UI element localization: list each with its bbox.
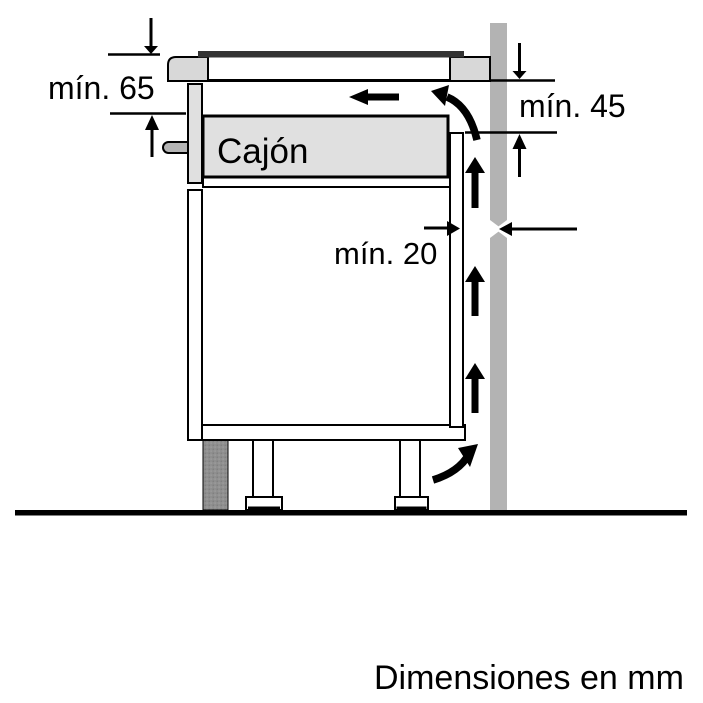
dim-label-hob-depth: mín. 65 [48, 70, 155, 106]
arrow-stem [472, 282, 479, 316]
hob-glass-surface [198, 51, 464, 58]
leg-shaft [400, 440, 420, 497]
airflow-arrow-front [349, 89, 399, 105]
hob-installation-diagram: Cajón [0, 0, 703, 703]
dim-label-rear-gap: mín. 20 [334, 236, 437, 271]
dim-arrow-stem [518, 43, 521, 72]
drawer-front-panel [188, 84, 202, 183]
hob-cavity-bottom-line [206, 79, 452, 82]
dim-arrow-up-icon [513, 134, 527, 149]
dim-arrow-stem [424, 227, 447, 230]
leg-foot-sole [397, 507, 427, 511]
dim-arrow-down-icon [513, 71, 527, 79]
airflow-arrow-up-1 [465, 157, 485, 208]
dimension-hob-depth: mín. 65 [48, 18, 186, 157]
cabinet-plinth [203, 440, 228, 510]
worktop-rear-section [450, 57, 490, 81]
drawer-label: Cajón [217, 132, 308, 171]
installation-diagram-page: Cajón [0, 0, 703, 703]
cabinet-bottom-shelf [202, 425, 465, 440]
arrow-head-up-icon [465, 266, 485, 282]
airflow-arrow-up-2 [465, 266, 485, 316]
leg-shaft [253, 440, 273, 497]
arrow-stem [472, 173, 479, 208]
dim-arrow-stem [151, 130, 154, 157]
arrow-head-upleft-icon [431, 85, 449, 106]
worktop-front-section [168, 57, 208, 81]
cabinet-leg-back [395, 440, 428, 511]
leg-foot-sole [248, 507, 280, 511]
curved-stem [433, 454, 469, 480]
units-caption: Dimensiones en mm [374, 659, 684, 697]
cabinet-leg-front [246, 440, 282, 511]
arrow-head-left-icon [349, 89, 368, 105]
arrow-head-up-icon [465, 157, 485, 173]
cabinet-front-panel [188, 190, 202, 440]
wall-section [490, 23, 507, 511]
cabinet-back-panel [450, 133, 463, 427]
dim-arrow-down-icon [144, 46, 158, 54]
dim-label-wall-clearance: mín. 45 [519, 88, 626, 124]
arrow-stem [472, 379, 479, 413]
arrow-head-up-icon [465, 363, 485, 379]
dim-arrow-stem [150, 18, 153, 47]
hob-body-cavity [208, 57, 450, 80]
arrow-stem [368, 94, 399, 101]
floor-line [15, 510, 687, 516]
airflow-arrow-bottom-curve [433, 444, 478, 480]
airflow-arrow-up-3 [465, 363, 485, 413]
dim-arrow-stem [512, 228, 577, 231]
dim-arrow-stem [518, 149, 521, 177]
dim-arrow-up-icon [145, 115, 159, 130]
